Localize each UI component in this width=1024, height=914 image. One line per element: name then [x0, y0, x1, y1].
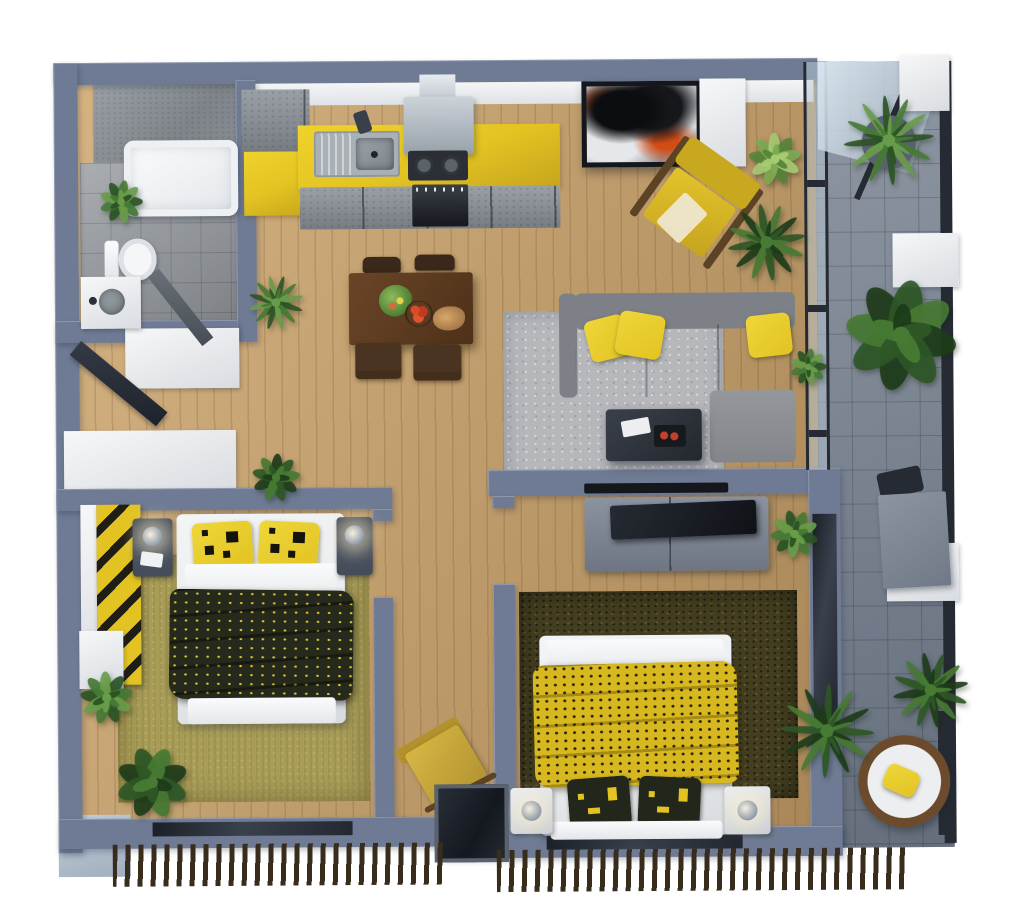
bedroom2-palm — [780, 683, 875, 778]
balcony-small-plant — [785, 344, 831, 390]
bedroom1-plant-bottom — [112, 742, 193, 823]
bedroom2-plant — [764, 504, 824, 564]
bedroom1-plant-left — [73, 665, 139, 731]
plants-layer — [0, 0, 1024, 914]
balcony-palm — [843, 95, 934, 186]
balcony-fern — [887, 647, 974, 734]
living-light-plant — [742, 126, 808, 192]
hallway-plant — [246, 447, 306, 507]
dining-plant — [245, 271, 307, 333]
apartment-plan — [0, 0, 1024, 914]
bathroom-plant — [94, 175, 148, 229]
floorplan-stage — [0, 0, 1024, 914]
living-fern — [722, 198, 811, 287]
balcony-large-plant — [839, 273, 964, 398]
